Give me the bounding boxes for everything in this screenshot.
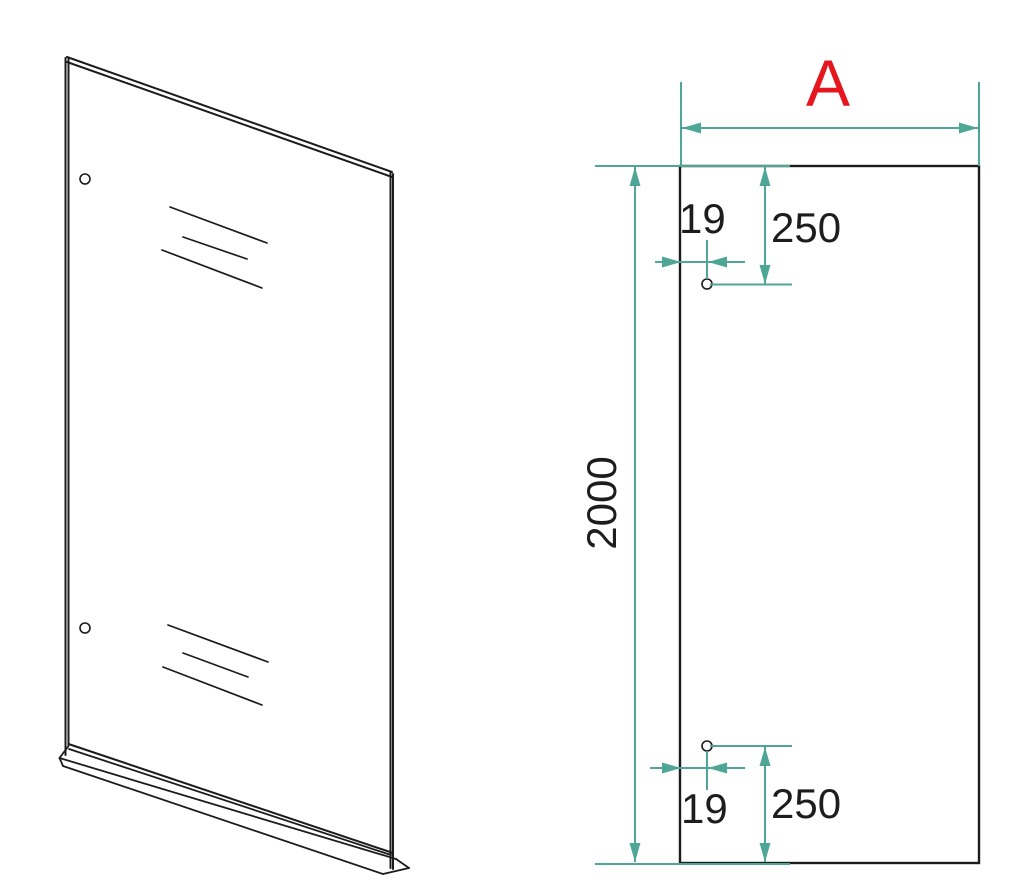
reflection-line bbox=[183, 653, 248, 677]
channel-front-base-edge bbox=[63, 766, 383, 874]
panel-outline-2d bbox=[680, 166, 979, 863]
channel-back-top-edge bbox=[69, 749, 391, 855]
arrow-width-right bbox=[959, 123, 978, 134]
dim-label-height-2000: 2000 bbox=[578, 456, 625, 549]
reflection-lines-lower bbox=[163, 625, 268, 705]
dimension-labels: 19 250 19 250 2000 bbox=[578, 195, 841, 832]
channel-right-end-top bbox=[396, 859, 409, 868]
channel-right-end-base bbox=[383, 868, 409, 874]
glass-bottom-edge bbox=[69, 744, 394, 853]
arrow-top250-down bbox=[760, 265, 771, 284]
arrow-height-bottom bbox=[630, 843, 641, 862]
dimension-lines bbox=[595, 82, 979, 864]
reflection-line bbox=[162, 250, 262, 288]
arrow-height-top bbox=[630, 167, 641, 186]
hole-bottom-iso bbox=[80, 623, 90, 633]
arrow-top19-left bbox=[708, 257, 727, 268]
arrow-top250-up bbox=[760, 167, 771, 186]
dim-label-bottom-250: 250 bbox=[771, 780, 841, 827]
dim-label-bottom-19: 19 bbox=[681, 785, 728, 832]
iso-view bbox=[60, 57, 410, 874]
dim-label-top-250: 250 bbox=[771, 204, 841, 251]
channel-front-lip-edge bbox=[60, 758, 397, 859]
glass-top-edge bbox=[67, 57, 392, 172]
arrow-width-left bbox=[682, 123, 701, 134]
hole-top-iso bbox=[80, 174, 90, 184]
reflection-line bbox=[163, 667, 262, 705]
reflection-lines-upper bbox=[162, 207, 267, 288]
arrow-bottom19-right bbox=[662, 763, 681, 774]
arrow-top19-right bbox=[662, 257, 681, 268]
arrow-bottom250-up bbox=[760, 747, 771, 766]
dim-label-top-19: 19 bbox=[679, 195, 726, 242]
technical-drawing-page: 19 250 19 250 2000 A bbox=[0, 0, 1024, 893]
arrow-bottom250-down bbox=[760, 843, 771, 862]
glass-top-edge-thickness bbox=[67, 62, 392, 177]
holes-2d bbox=[702, 279, 712, 751]
dim-label-width-A: A bbox=[806, 46, 850, 120]
bottom-channel-iso bbox=[60, 746, 410, 874]
reflection-line bbox=[168, 625, 268, 662]
reflection-line bbox=[183, 237, 247, 259]
arrow-bottom19-left bbox=[708, 763, 727, 774]
glass-panel-drawing: 19 250 19 250 2000 A bbox=[0, 0, 1024, 893]
channel-left-end-top bbox=[60, 746, 69, 758]
glass-panel-iso bbox=[66, 57, 394, 869]
